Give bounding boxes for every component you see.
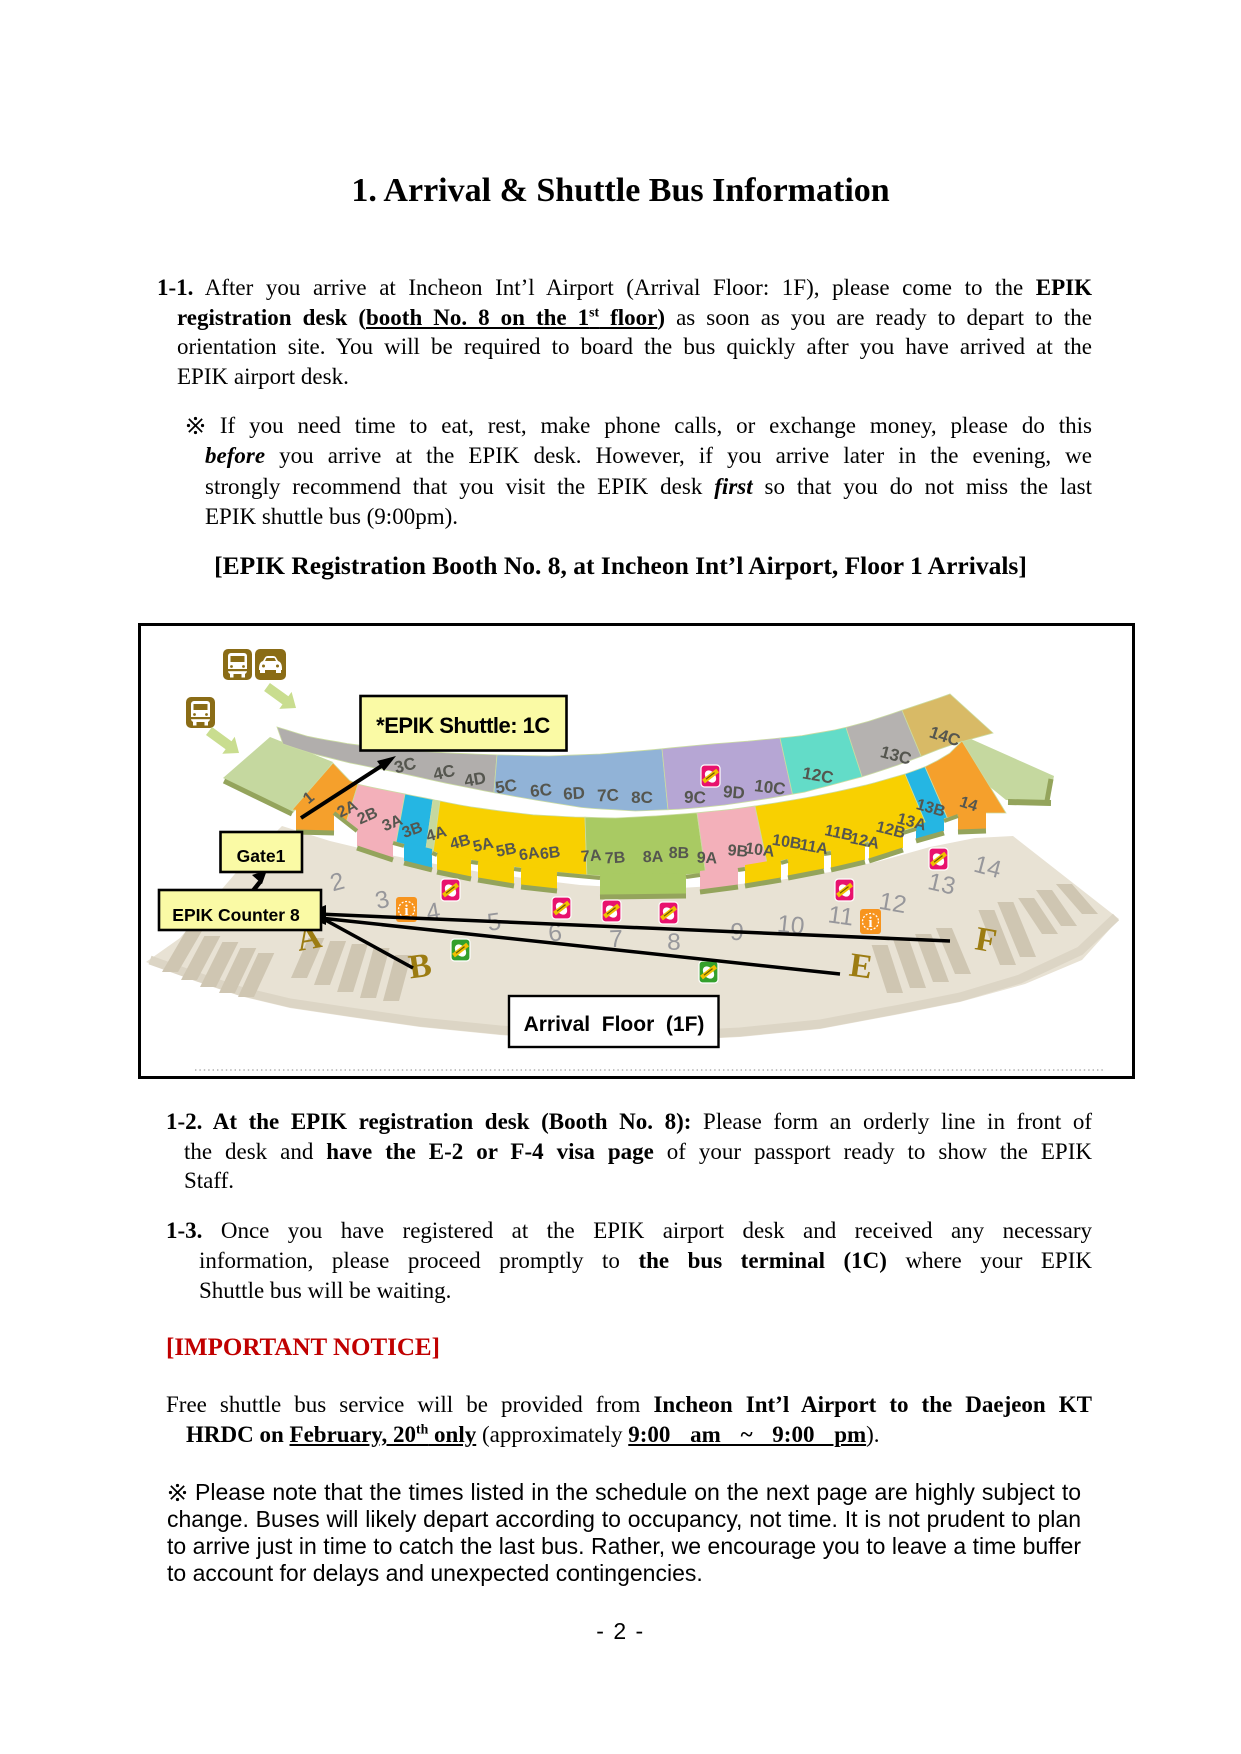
svg-text:7C: 7C <box>597 786 619 806</box>
svg-text:6B: 6B <box>539 844 561 863</box>
svg-text:8C: 8C <box>631 788 653 807</box>
svg-text:12: 12 <box>877 888 909 919</box>
svg-text:8A: 8A <box>643 849 664 866</box>
svg-text:6D: 6D <box>563 783 586 803</box>
svg-text:6C: 6C <box>529 780 553 801</box>
svg-text:*EPIK Shuttle: 1C: *EPIK Shuttle: 1C <box>376 713 550 738</box>
svg-text:EPIK Counter 8: EPIK Counter 8 <box>172 905 300 925</box>
svg-text:7A: 7A <box>580 847 602 866</box>
svg-text:Gate1: Gate1 <box>237 846 286 866</box>
svg-text:10C: 10C <box>753 776 786 799</box>
svg-text:5C: 5C <box>494 776 518 798</box>
svg-text:6A: 6A <box>518 844 541 864</box>
svg-text:Arrival Floor (1F): Arrival Floor (1F) <box>524 1013 705 1036</box>
svg-text:11: 11 <box>826 901 855 931</box>
svg-text:7B: 7B <box>604 849 625 867</box>
svg-text:4D: 4D <box>463 768 488 790</box>
svg-text:9C: 9C <box>684 788 706 808</box>
svg-text:8: 8 <box>667 929 681 956</box>
svg-text:8B: 8B <box>669 845 690 862</box>
svg-text:i: i <box>868 915 872 931</box>
svg-text:9A: 9A <box>696 849 718 867</box>
svg-text:9D: 9D <box>722 782 745 803</box>
